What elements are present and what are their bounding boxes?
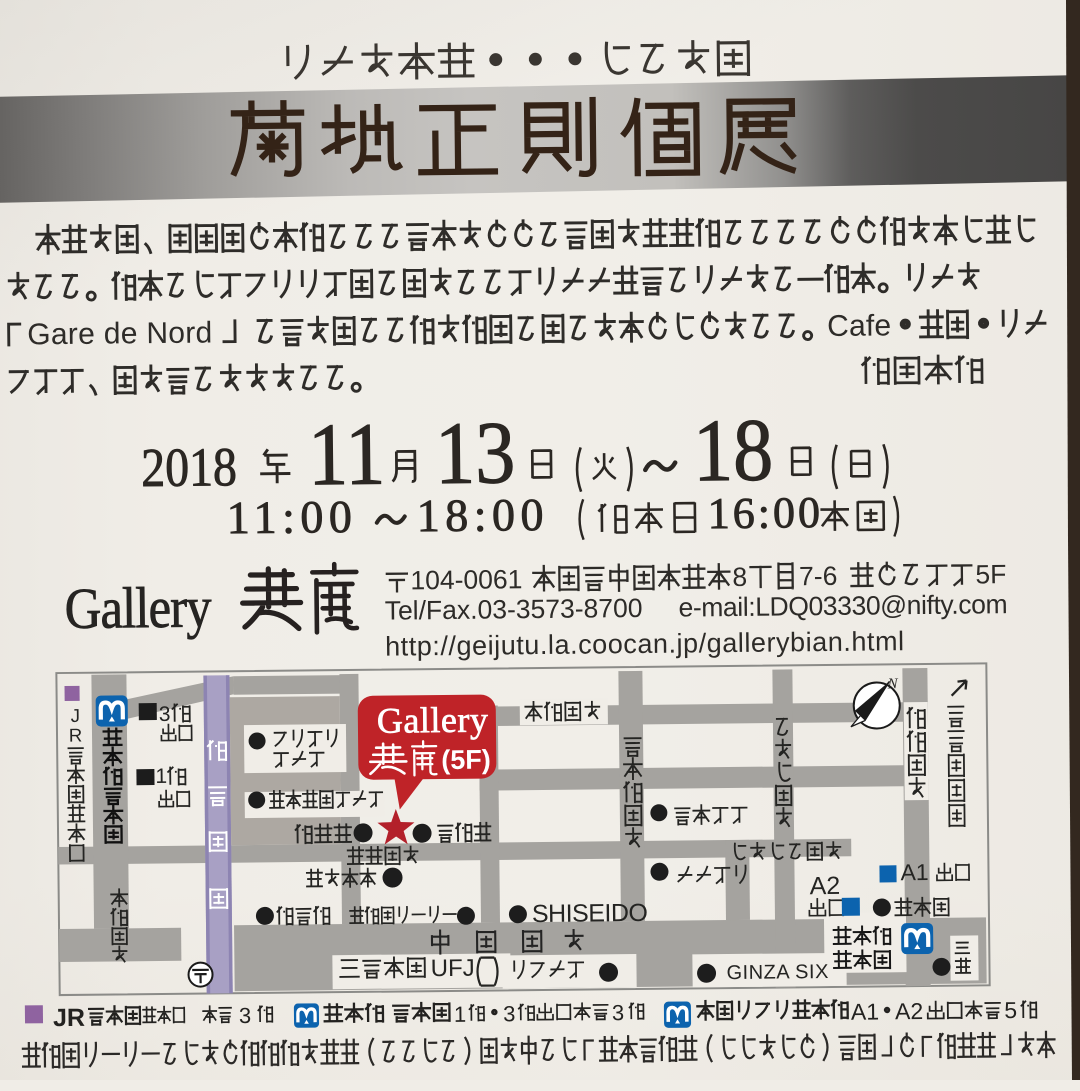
svg-text:e-mail:LDQ03330@nifty.com: e-mail:LDQ03330@nifty.com	[678, 589, 1007, 622]
svg-text:A1: A1	[900, 859, 928, 885]
svg-text:3: 3	[239, 1003, 252, 1028]
svg-text:5: 5	[1004, 997, 1017, 1023]
svg-text:(5F): (5F)	[441, 745, 491, 776]
svg-text:13: 13	[435, 404, 516, 503]
svg-text:3: 3	[612, 1000, 625, 1025]
svg-text:R: R	[69, 725, 83, 746]
svg-text:5F: 5F	[975, 559, 1006, 589]
svg-text:11:00: 11:00	[226, 491, 357, 543]
svg-text:JR: JR	[53, 1004, 85, 1032]
svg-text:Gallery: Gallery	[377, 700, 489, 741]
svg-text:1: 1	[155, 765, 167, 788]
svg-text:18:00: 18:00	[416, 489, 549, 541]
svg-text:3: 3	[159, 703, 171, 726]
svg-text:11: 11	[308, 406, 386, 505]
svg-text:Gare de Nord: Gare de Nord	[27, 316, 213, 351]
svg-text:8: 8	[732, 562, 747, 592]
svg-text:http://geijutu.la.coocan.jp/ga: http://geijutu.la.coocan.jp/gallerybian.…	[385, 626, 905, 661]
svg-text:Cafe: Cafe	[827, 309, 892, 343]
svg-text:A2: A2	[895, 998, 923, 1024]
svg-text:1: 1	[454, 1002, 467, 1027]
svg-text:A1: A1	[851, 998, 879, 1024]
svg-text:J: J	[71, 705, 81, 726]
svg-text:7-6: 7-6	[799, 561, 838, 591]
svg-text:Gallery: Gallery	[64, 574, 212, 640]
svg-text:18: 18	[693, 402, 774, 501]
svg-text:SHISEIDO: SHISEIDO	[532, 899, 648, 928]
svg-text:GINZA SIX: GINZA SIX	[726, 961, 829, 984]
svg-text:Tel/Fax.03-3573-8700: Tel/Fax.03-3573-8700	[385, 593, 643, 626]
svg-text:N: N	[886, 676, 898, 692]
svg-text:A2: A2	[809, 872, 840, 900]
svg-text:104-0061: 104-0061	[410, 564, 522, 595]
svg-text:16:00: 16:00	[707, 488, 823, 538]
svg-text:UFJ: UFJ	[431, 955, 475, 982]
svg-text:2018: 2018	[141, 437, 237, 499]
svg-text:3: 3	[503, 1001, 516, 1026]
